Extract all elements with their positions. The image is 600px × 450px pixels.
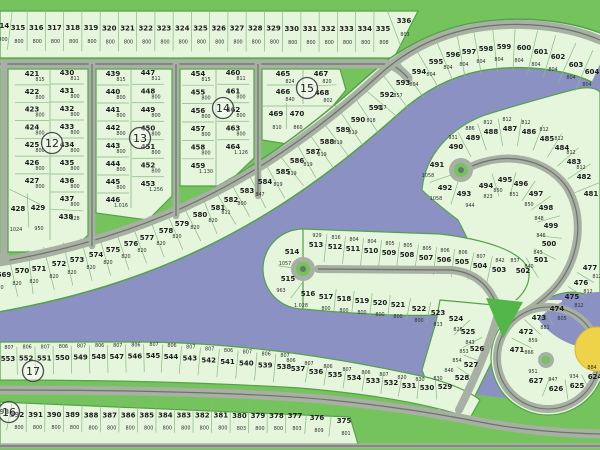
lot-441-area: 800: [116, 113, 125, 119]
lot-596-area: 804: [443, 65, 452, 71]
lot-585-area: 819: [273, 182, 282, 188]
lot-538-number: 538: [277, 363, 292, 371]
lot-440-area: 800: [116, 95, 125, 101]
lot-458-area: 800: [201, 151, 210, 157]
lot-314-number: 314: [0, 22, 9, 30]
lot-487-number: 487: [503, 125, 518, 133]
lot-333-number: 333: [339, 25, 354, 33]
lot-444-area: 800: [116, 167, 125, 173]
lot-508-area: 805: [403, 243, 412, 249]
lot-439-area: 815: [116, 77, 125, 83]
lot-429-area: 950: [34, 226, 43, 232]
lot-383-number: 383: [176, 412, 191, 420]
lot-446-area: 1.016: [114, 203, 128, 209]
block-marker-14: 14: [216, 102, 230, 115]
lot-461-area: 800: [236, 95, 245, 101]
lot-449-area: 800: [151, 113, 160, 119]
lot-382-number: 382: [195, 412, 210, 420]
lot-381-area: 800: [218, 426, 227, 432]
lot-572-area: 820: [49, 274, 58, 280]
lot-575-number: 575: [106, 246, 121, 254]
lot-455-area: 800: [201, 95, 210, 101]
lot-324-number: 324: [175, 24, 190, 32]
lot-385-number: 385: [139, 411, 154, 419]
plat-map: 3148003158003168003178003188003198003208…: [0, 0, 600, 450]
block-marker-17: 17: [26, 365, 40, 378]
lot-385-area: 800: [144, 425, 153, 431]
lot-487-area: 812: [502, 117, 511, 123]
lot-469-number: 469: [269, 110, 284, 118]
lot-579-area: 820: [172, 234, 181, 240]
lot-330-area: 800: [288, 40, 297, 46]
lot-553-area: 807: [4, 345, 13, 351]
lot-477-area: 812: [592, 274, 600, 280]
lot-540-number: 540: [239, 360, 254, 368]
lot-476-number: 476: [574, 279, 589, 287]
lot-599-area: 804: [494, 57, 503, 63]
lot-432-area: 800: [70, 112, 79, 118]
lot-378-number: 378: [269, 412, 284, 420]
lot-577-area: 820: [137, 248, 146, 254]
lot-574-number: 574: [89, 251, 104, 259]
lot-570-area: 820: [12, 281, 21, 287]
lot-322-number: 322: [138, 24, 153, 32]
lot-516-number: 516: [301, 290, 316, 298]
lot-490-number: 490: [449, 143, 464, 151]
lot-518-area: 800: [339, 308, 348, 314]
lot-545-number: 545: [146, 352, 161, 360]
lot-525-number: 525: [461, 328, 476, 336]
lot-532-number: 532: [384, 379, 399, 387]
lot-335-number: 335: [376, 25, 391, 33]
circle-center-bulb-green: [542, 356, 550, 364]
lot-486-area: 812: [521, 120, 530, 126]
lot-584-area: 847: [255, 192, 264, 198]
lot-423-area: 800: [35, 113, 44, 119]
lot-528-area: 846: [444, 368, 453, 374]
lot-581-area: 820: [208, 218, 217, 224]
lot-380-area: 803: [237, 426, 246, 432]
lot-503-area: 842: [495, 258, 504, 264]
lot-543-area: 807: [186, 345, 195, 351]
lot-384-number: 384: [158, 412, 173, 420]
lot-596-number: 596: [446, 51, 461, 59]
lot-534-area: 807: [342, 367, 351, 373]
lot-465-number: 465: [276, 70, 291, 78]
lot-381-number: 381: [214, 412, 229, 420]
lot-378-area: 800: [274, 426, 283, 432]
lot-332-number: 332: [321, 25, 336, 33]
lot-327-area: 800: [233, 40, 242, 46]
lot-587-area: 819: [303, 162, 312, 168]
lot-484-area: 812: [554, 136, 563, 142]
lot-591-area: 818: [366, 118, 375, 124]
lot-530-area: 830: [415, 377, 424, 383]
lot-516-area: 1.028: [294, 303, 308, 309]
lot-481-number: 481: [584, 190, 599, 198]
lot-571-area: 820: [29, 279, 38, 285]
lot-485-area: 812: [539, 127, 548, 133]
lot-315-area: 800: [14, 39, 23, 45]
lot-582-number: 582: [224, 196, 239, 204]
lot-494-area: 823: [483, 194, 492, 200]
lot-428-area: 1024: [10, 227, 22, 233]
lot-522-number: 522: [412, 305, 427, 313]
lot-626-area: 947: [548, 377, 557, 383]
lot-598-area: 804: [476, 59, 485, 65]
culdesac-bulb-center: [458, 167, 464, 173]
lot-452-area: 800: [151, 169, 160, 175]
lot-323-number: 323: [157, 24, 172, 32]
lot-583-number: 583: [240, 187, 255, 195]
lot-541-area: 806: [224, 348, 233, 354]
lot-502-number: 502: [516, 267, 531, 275]
lot-600-number: 600: [517, 44, 532, 52]
lot-550-area: 806: [59, 344, 68, 350]
lot-482-area: 812: [576, 165, 585, 171]
lot-529-number: 529: [438, 383, 453, 391]
lot-578-number: 578: [159, 227, 174, 235]
lot-532-area: 807: [379, 372, 388, 378]
lot-583-area: 800: [237, 201, 246, 207]
lot-514-area: 1057: [279, 261, 291, 267]
lot-389-number: 389: [65, 411, 80, 419]
lot-328-area: 800: [252, 40, 261, 46]
lot-511-number: 511: [346, 245, 361, 253]
lot-573-area: 820: [67, 270, 76, 276]
lot-435-area: 800: [70, 166, 79, 172]
lot-333-area: 800: [343, 40, 352, 46]
lot-533-area: 806: [361, 370, 370, 376]
lot-498-number: 498: [539, 204, 554, 212]
lot-377-number: 377: [288, 412, 303, 420]
lot-488-area: 812: [483, 120, 492, 126]
lot-386-number: 386: [121, 411, 136, 419]
lot-538-area: 807: [280, 353, 289, 359]
lot-569-area: 820: [0, 285, 4, 291]
lot-535-number: 535: [328, 371, 343, 379]
lot-508-number: 508: [400, 251, 415, 259]
lot-474-area: 805: [557, 316, 566, 322]
lot-319-area: 800: [87, 39, 96, 45]
lot-428-number: 428: [11, 205, 26, 213]
culdesac-bulb-center: [300, 266, 306, 272]
lot-507-area: 805: [422, 246, 431, 252]
lot-318-number: 318: [65, 24, 80, 32]
lot-326-number: 326: [211, 25, 226, 33]
lot-316-area: 800: [33, 39, 42, 45]
lot-523-area: 813: [433, 322, 442, 328]
lot-330-number: 330: [284, 25, 299, 33]
lot-626-number: 626: [549, 385, 564, 393]
lot-334-number: 334: [357, 25, 372, 33]
lot-492-area: 1058: [430, 196, 442, 202]
lot-315-number: 315: [11, 24, 26, 32]
lot-624-area: 884: [587, 365, 596, 371]
lot-376-number: 376: [310, 414, 325, 422]
lot-471-number: 471: [510, 346, 525, 354]
lot-513-number: 513: [309, 241, 324, 249]
lot-593-area: 857: [393, 93, 402, 99]
lot-505-area: 806: [458, 250, 467, 256]
lot-438-area: 828: [70, 216, 79, 222]
lot-604-area: 804: [582, 82, 591, 88]
lot-588-number: 588: [320, 138, 335, 146]
lot-582-area: 811: [221, 210, 230, 216]
lot-489-number: 489: [466, 134, 481, 142]
lot-542-area: 807: [205, 346, 214, 352]
lot-531-number: 531: [402, 382, 417, 390]
lot-467-area: 820: [322, 79, 331, 85]
lot-317-area: 800: [51, 39, 60, 45]
lot-497-number: 497: [529, 190, 544, 198]
lot-492-number: 492: [438, 184, 453, 192]
lot-493-area: 944: [465, 203, 474, 209]
lot-515-number: 515: [281, 275, 296, 283]
lot-317-number: 317: [47, 24, 62, 32]
lot-539-area: 806: [261, 351, 270, 357]
lot-551-area: 807: [41, 344, 50, 350]
lot-520-area: 800: [375, 312, 384, 318]
lot-550-number: 550: [55, 354, 70, 362]
lot-627-number: 627: [529, 377, 544, 385]
lot-544-area: 806: [167, 343, 176, 349]
lot-379-area: 800: [255, 426, 264, 432]
lot-594-number: 594: [412, 68, 427, 76]
lot-491-area: 1058: [422, 173, 434, 179]
lot-328-number: 328: [248, 25, 263, 33]
lot-552-area: 806: [22, 345, 31, 351]
lot-527-area: 854: [452, 358, 461, 364]
lot-375-number: 375: [337, 417, 352, 425]
lot-500-number: 500: [542, 240, 557, 248]
lot-466-number: 466: [276, 88, 291, 96]
lot-434-area: 800: [70, 148, 79, 154]
lot-447-area: 811: [151, 76, 160, 82]
lot-547-area: 807: [113, 343, 122, 349]
lot-334-area: 800: [361, 40, 370, 46]
block-marker-15: 15: [300, 82, 314, 95]
lot-462-area: 800: [236, 113, 245, 119]
lot-543-number: 543: [183, 355, 198, 363]
lot-504-number: 504: [473, 262, 488, 270]
lot-426-area: 800: [35, 166, 44, 172]
lot-571-number: 571: [32, 265, 47, 273]
lot-488-number: 488: [484, 128, 499, 136]
lot-430-area: 811: [70, 76, 79, 82]
lot-595-area: 804: [426, 72, 435, 78]
lot-429-number: 429: [31, 204, 46, 212]
lot-380-number: 380: [232, 412, 247, 420]
lot-389-area: 800: [70, 425, 79, 431]
lot-460-area: 811: [236, 76, 245, 82]
lot-475-area: 812: [574, 303, 583, 309]
lot-534-number: 534: [347, 374, 362, 382]
lot-482-number: 482: [577, 173, 592, 181]
lot-377-area: 803: [292, 426, 301, 432]
lot-506-number: 506: [437, 256, 452, 264]
lot-580-number: 580: [193, 211, 208, 219]
lot-388-area: 800: [88, 425, 97, 431]
lot-574-area: 820: [86, 265, 95, 271]
lot-510-area: 804: [367, 239, 376, 245]
lot-445-area: 800: [116, 185, 125, 191]
lot-529-area: 830: [433, 376, 442, 382]
lot-386-area: 800: [126, 425, 135, 431]
lot-437-area: 800: [70, 202, 79, 208]
lot-592-area: 817: [377, 105, 386, 111]
lot-518-number: 518: [337, 295, 352, 303]
lot-323-area: 800: [160, 39, 169, 45]
lot-546-area: 806: [131, 342, 140, 348]
lot-498-area: 848: [534, 216, 543, 222]
lot-517-number: 517: [319, 293, 334, 301]
lot-593-number: 593: [396, 79, 411, 87]
lot-424-area: 800: [35, 130, 44, 136]
lot-603-number: 603: [569, 61, 584, 69]
lot-324-area: 800: [179, 39, 188, 45]
lot-537-number: 537: [291, 365, 306, 373]
lot-459-area: 1.130: [199, 169, 213, 175]
lot-542-number: 542: [201, 356, 216, 364]
lot-553-number: 553: [1, 355, 16, 363]
lot-586-area: 819: [287, 171, 296, 177]
lot-515-area: 963: [276, 288, 285, 294]
lot-504-area: 807: [476, 254, 485, 260]
lot-601-number: 601: [534, 48, 549, 56]
lot-509-number: 509: [382, 249, 397, 257]
lot-510-number: 510: [364, 247, 379, 255]
lot-466-area: 840: [285, 97, 294, 103]
lot-476-area: 812: [583, 289, 592, 295]
lot-514-number: 514: [285, 248, 300, 256]
lot-573-number: 573: [70, 256, 85, 264]
lot-517-area: 800: [321, 306, 330, 312]
lot-590-area: 819: [348, 130, 357, 136]
lot-576-area: 820: [121, 254, 130, 260]
lot-598-number: 598: [479, 45, 494, 53]
lot-483-area: 812: [566, 150, 575, 156]
lot-470-number: 470: [290, 110, 305, 118]
lot-491-number: 491: [430, 161, 445, 169]
lot-595-number: 595: [429, 58, 444, 66]
lot-602-number: 602: [551, 53, 566, 61]
lot-489-area: 886: [465, 126, 474, 132]
lot-572-number: 572: [52, 260, 67, 268]
lot-533-number: 533: [366, 377, 381, 385]
lot-603-area: 804: [566, 75, 575, 81]
lot-321-area: 800: [124, 39, 133, 45]
lot-512-number: 512: [328, 243, 343, 251]
lot-464-area: 1.126: [234, 150, 248, 156]
lot-588-area: 819: [317, 152, 326, 158]
lot-451-area: 800: [151, 150, 160, 156]
lot-551-number: 551: [37, 354, 52, 362]
lot-502-area: 837: [510, 258, 519, 264]
lot-486-number: 486: [522, 128, 537, 136]
lot-570-number: 570: [15, 267, 30, 275]
lot-496-number: 496: [514, 180, 529, 188]
lot-521-number: 521: [391, 301, 406, 309]
block-marker-16: 16: [2, 406, 16, 419]
lot-390-area: 800: [51, 425, 60, 431]
lot-535-area: 806: [323, 364, 332, 370]
lot-329-number: 329: [266, 25, 281, 33]
lot-325-number: 325: [193, 25, 208, 33]
lot-336-number: 336: [397, 17, 412, 25]
lot-513-area: 929: [312, 233, 321, 239]
lot-422-area: 800: [35, 95, 44, 101]
lot-506-area: 806: [440, 248, 449, 254]
lot-625-area: 934: [569, 374, 578, 380]
lot-503-number: 503: [492, 266, 507, 274]
lot-521-area: 800: [393, 314, 402, 320]
lot-519-number: 519: [355, 297, 370, 305]
lot-390-number: 390: [47, 411, 62, 419]
lot-469-area: 810: [272, 125, 281, 131]
lot-384-area: 800: [163, 426, 172, 432]
lot-485-number: 485: [540, 135, 555, 143]
lot-536-area: 807: [304, 361, 313, 367]
lot-326-area: 800: [215, 40, 224, 46]
lot-331-number: 331: [303, 25, 318, 33]
lot-597-number: 597: [462, 48, 477, 56]
lot-494-number: 494: [479, 182, 494, 190]
plat-map-screenshot: 3148003158003168003178003188003198003208…: [0, 0, 600, 450]
lot-325-area: 800: [197, 40, 206, 46]
lot-601-area: 804: [531, 62, 540, 68]
lot-392-area: 800: [14, 425, 23, 431]
lot-314-area: 800: [0, 37, 8, 43]
lot-336-area: 803: [400, 32, 409, 38]
lot-467-number: 467: [314, 70, 329, 78]
lot-592-number: 592: [380, 91, 395, 99]
lot-327-number: 327: [230, 25, 245, 33]
lot-495-number: 495: [498, 176, 513, 184]
lot-456-area: 800: [201, 114, 210, 120]
lot-499-area: 846: [536, 233, 545, 239]
lot-520-number: 520: [373, 299, 388, 307]
lot-530-number: 530: [420, 384, 435, 392]
lot-331-area: 800: [306, 40, 315, 46]
lot-597-area: 804: [459, 62, 468, 68]
lot-499-number: 499: [544, 222, 559, 230]
lot-584-number: 584: [258, 178, 273, 186]
lot-528-number: 528: [455, 374, 470, 382]
lot-594-area: 804: [409, 82, 418, 88]
lot-321-number: 321: [120, 24, 135, 32]
lot-329-area: 800: [270, 40, 279, 46]
lot-540-area: 807: [243, 350, 252, 356]
lot-471-area: 866: [524, 350, 533, 356]
lot-590-number: 590: [351, 116, 366, 124]
lot-332-area: 800: [325, 40, 334, 46]
lot-549-number: 549: [73, 354, 88, 362]
lot-627-area: 951: [528, 369, 537, 375]
lot-474-number: 474: [550, 305, 565, 313]
lot-546-number: 546: [128, 352, 143, 360]
lot-472-number: 472: [519, 328, 534, 336]
lot-391-number: 391: [28, 411, 43, 419]
lot-569-number: 569: [0, 271, 11, 279]
lot-470-area: 860: [293, 125, 302, 131]
lot-599-number: 599: [497, 43, 512, 51]
block-marker-13: 13: [133, 132, 147, 145]
lot-586-number: 586: [290, 157, 305, 165]
lot-602-area: 804: [548, 67, 557, 73]
lot-604-number: 604: [585, 68, 600, 76]
lot-320-number: 320: [102, 24, 117, 32]
